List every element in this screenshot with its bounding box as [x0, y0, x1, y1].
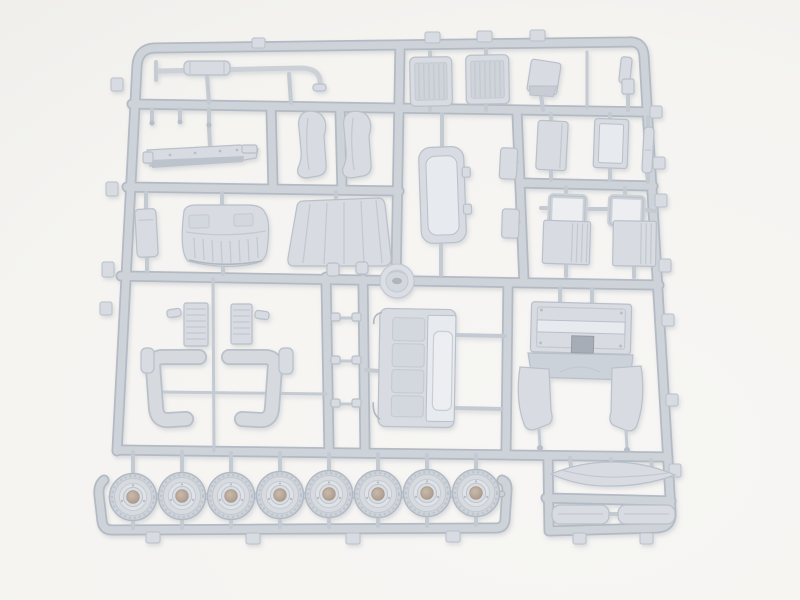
wheel-8	[453, 470, 500, 517]
part-small-brackets	[619, 57, 634, 94]
wheel-5	[306, 471, 353, 518]
dark-slot	[571, 336, 593, 354]
part-seat-back-1	[298, 111, 326, 178]
wheel-7	[404, 470, 451, 517]
part-battery-box	[135, 208, 158, 257]
rear-mudguard-left	[518, 367, 552, 430]
part-mud-flap-1	[552, 505, 609, 524]
part-cab-side-panel-2	[593, 118, 629, 168]
part-chassis-plate	[143, 145, 258, 168]
part-exhaust-pipe	[156, 61, 326, 91]
wheel-2	[159, 473, 206, 520]
part-small-door-panel	[526, 59, 561, 99]
part-seat-back-2	[343, 111, 371, 178]
part-mud-flap-2	[618, 505, 675, 524]
sleeve-left	[141, 348, 154, 373]
part-cab-floor-assembly	[518, 302, 643, 453]
part-hub-disc	[380, 264, 414, 298]
wheel-4	[257, 472, 304, 519]
part-vent-panel-1	[542, 220, 590, 265]
part-door-inner-panel	[418, 146, 472, 244]
part-cab-side-panel-1	[536, 120, 569, 171]
part-pillar-strip	[642, 127, 654, 173]
photo-canvas	[0, 0, 800, 600]
part-door-with-windows	[372, 308, 456, 427]
sprue-tree	[99, 30, 681, 544]
rear-mudguard-right	[610, 366, 643, 431]
part-radiator-grille-1	[410, 57, 453, 107]
wheel-6	[355, 471, 402, 518]
part-vent-panel-2	[613, 221, 657, 267]
sleeve-right	[279, 348, 293, 374]
part-windshield-cowl	[288, 198, 391, 276]
wheel-3	[208, 473, 255, 520]
part-radiator-grille-2	[466, 55, 510, 105]
part-cab-roof	[182, 205, 268, 266]
sprue-photo	[0, 0, 800, 600]
wheel-1	[110, 474, 157, 521]
part-grab-handles	[331, 313, 361, 407]
part-fender-assembly	[141, 303, 293, 420]
